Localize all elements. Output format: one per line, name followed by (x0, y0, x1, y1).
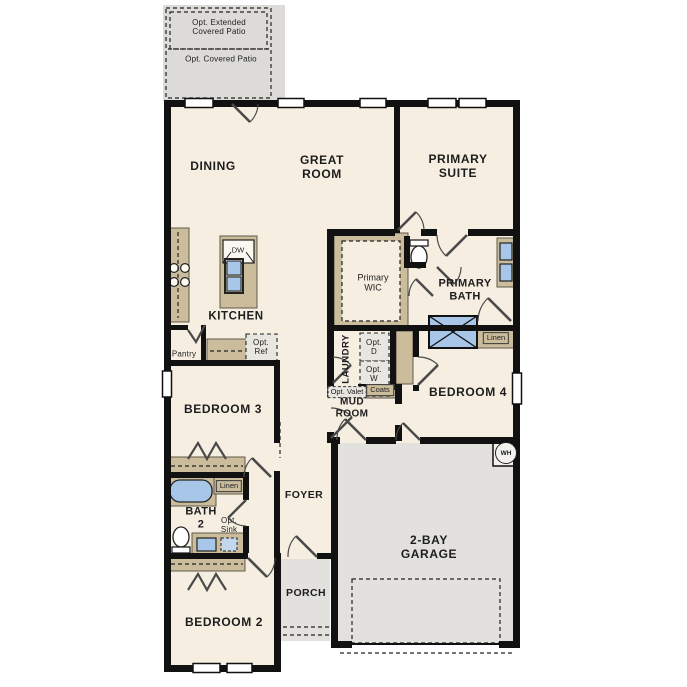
bath2-toilet (172, 527, 190, 553)
floor-plan: Opt. Extended Covered Patio Opt. Covered… (0, 0, 687, 687)
chase (396, 331, 413, 384)
bath2-opt-sink (221, 538, 237, 551)
bath2-sink (197, 538, 216, 551)
opt-ref-box (246, 334, 277, 361)
bath2-tub (170, 480, 212, 502)
opt-dryer-box (360, 333, 389, 361)
primary-sink-2 (500, 264, 512, 281)
primary-sink-1 (500, 243, 512, 260)
linen-closet-bath2 (214, 476, 245, 494)
label-water-heater: WH (495, 442, 517, 464)
linen-closet-primary (475, 330, 514, 348)
floor-plan-drawing (0, 0, 687, 687)
wic-interior (342, 241, 400, 321)
opt-washer-box (360, 361, 389, 387)
primary-shower (429, 316, 477, 348)
